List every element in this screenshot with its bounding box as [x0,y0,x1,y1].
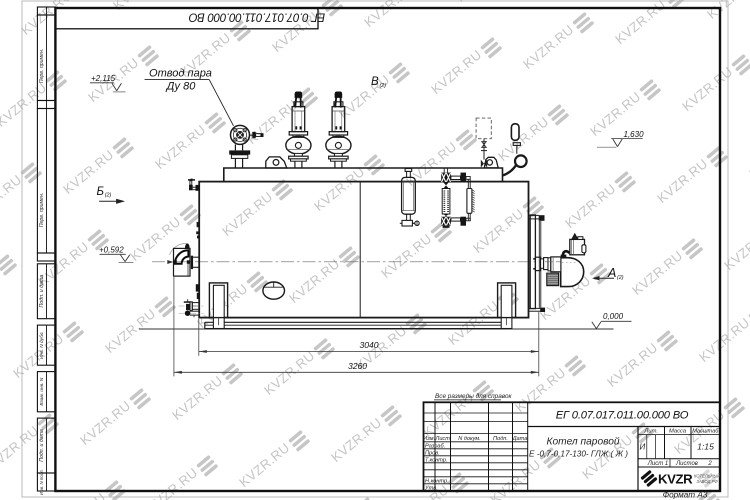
svg-text:Все размеры для справок: Все размеры для справок [435,392,513,400]
svg-text:ЗАВОД.РФ: ЗАВОД.РФ [696,479,718,484]
svg-text:Подп. и дата: Подп. и дата [39,275,45,308]
svg-text:Инв. N подл.: Инв. N подл. [39,469,44,495]
svg-text:KVZR.RU: KVZR.RU [604,340,660,390]
svg-text:Масштаб: Масштаб [692,429,719,435]
svg-text:N докум.: N докум. [458,436,481,442]
svg-text:И: И [640,443,646,452]
svg-text:1,630: 1,630 [624,130,645,139]
svg-text:Лит.: Лит. [643,429,658,435]
svg-text:Подп. и дата: Подп. и дата [39,429,45,462]
svg-text:Т.контр.: Т.контр. [425,458,448,464]
svg-text:В: В [371,76,379,88]
svg-text:KVZR.RU: KVZR.RU [169,373,225,423]
svg-text:Дата: Дата [512,436,528,442]
svg-text:KVZR.RU: KVZR.RU [152,122,208,172]
svg-text:KVZR.RU: KVZR.RU [520,22,576,72]
svg-text:KVZR.RU: KVZR.RU [704,0,750,22]
svg-text:KVZR.RU: KVZR.RU [696,315,750,365]
svg-text:Н.контр.: Н.контр. [425,478,449,484]
svg-text:3040: 3040 [359,340,378,350]
svg-text:Лист: Лист [434,436,450,442]
svg-text:+0,592: +0,592 [99,245,124,254]
svg-text:KVZR.RU: KVZR.RU [0,423,42,473]
svg-text:KVZR.RU: KVZR.RU [10,331,66,381]
svg-text:+2,115: +2,115 [91,74,116,83]
svg-text:Е -0,7-0,17-130- ГЛЖ ( Ж ): Е -0,7-0,17-130- ГЛЖ ( Ж ) [529,450,628,459]
svg-text:Ду 80: Ду 80 [165,81,197,93]
svg-text:KVZR.RU: KVZR.RU [77,398,133,448]
svg-text:Листов: Листов [675,461,698,467]
svg-text:KVZR.RU: KVZR.RU [679,64,735,114]
svg-text:(2): (2) [380,83,387,89]
svg-text:KVZR.RU: KVZR.RU [60,147,116,197]
svg-text:Отвод пара: Отвод пара [149,68,212,80]
svg-text:KVZR.RU: KVZR.RU [144,465,200,500]
svg-text:Масса: Масса [669,429,687,435]
svg-text:KVZR.RU: KVZR.RU [311,164,367,214]
svg-text:1:15: 1:15 [697,442,714,452]
svg-text:Инв. N дубл.: Инв. N дубл. [39,331,45,359]
svg-text:Разраб.: Разраб. [425,444,445,450]
svg-text:3260: 3260 [348,361,367,371]
svg-text:Подп.: Подп. [493,436,508,442]
svg-text:KVZR.RU: KVZR.RU [445,298,501,348]
svg-text:Пров.: Пров. [425,451,440,457]
svg-text:KVZR.RU: KVZR.RU [654,156,710,206]
svg-text:KVZR.RU: KVZR.RU [721,223,750,273]
svg-text:KVZR.RU: KVZR.RU [0,172,25,222]
svg-text:ЕГ 0.07.017.011.00.000 ВО: ЕГ 0.07.017.011.00.000 ВО [556,409,689,421]
svg-text:KVZR.RU: KVZR.RU [110,0,166,13]
svg-text:KVZR.RU: KVZR.RU [286,256,342,306]
svg-text:КОТЕЛЬНЫЙ: КОТЕЛЬНЫЙ [694,474,720,479]
svg-text:2: 2 [707,461,712,467]
svg-text:1: 1 [665,461,668,467]
svg-text:Лист: Лист [647,461,663,467]
svg-text:KVZR.RU: KVZR.RU [127,214,183,264]
svg-text:(2): (2) [105,193,112,199]
svg-text:KVZR: KVZR [658,472,693,487]
svg-text:Котел паровой: Котел паровой [546,437,619,448]
svg-text:Б: Б [97,186,105,198]
svg-text:KVZR.RU: KVZR.RU [629,248,685,298]
svg-text:KVZR.RU: KVZR.RU [328,415,384,465]
svg-text:Перв. примен.: Перв. примен. [39,193,45,227]
svg-text:0,000: 0,000 [603,312,624,321]
svg-text:Изм.: Изм. [423,436,435,442]
svg-text:Взам. инв. N: Взам. инв. N [39,377,45,405]
svg-text:ЕГ 0.07.017.011.00.000 ВО: ЕГ 0.07.017.011.00.000 ВО [189,10,326,22]
svg-text:Перв. примен.: Перв. примен. [39,49,45,83]
svg-text:KVZR.RU: KVZR.RU [487,457,543,500]
svg-text:KVZR.RU: KVZR.RU [562,181,618,231]
svg-text:KVZR.RU: KVZR.RU [428,47,484,97]
svg-text:KVZR.RU: KVZR.RU [219,189,275,239]
svg-text:KVZR.RU: KVZR.RU [0,80,50,130]
svg-text:KVZR.RU: KVZR.RU [361,0,417,30]
svg-text:Формат А3: Формат А3 [663,491,708,500]
svg-text:KVZR.RU: KVZR.RU [470,206,526,256]
svg-text:KVZR.RU: KVZR.RU [261,348,317,398]
svg-text:KVZR.RU: KVZR.RU [746,131,750,181]
svg-text:KVZR.RU: KVZR.RU [378,231,434,281]
svg-text:KVZR.RU: KVZR.RU [738,474,750,500]
svg-text:KVZR.RU: KVZR.RU [102,306,158,356]
svg-text:KVZR.RU: KVZR.RU [236,440,292,490]
svg-text:(2): (2) [617,275,624,281]
svg-text:Утв.: Утв. [424,485,438,491]
